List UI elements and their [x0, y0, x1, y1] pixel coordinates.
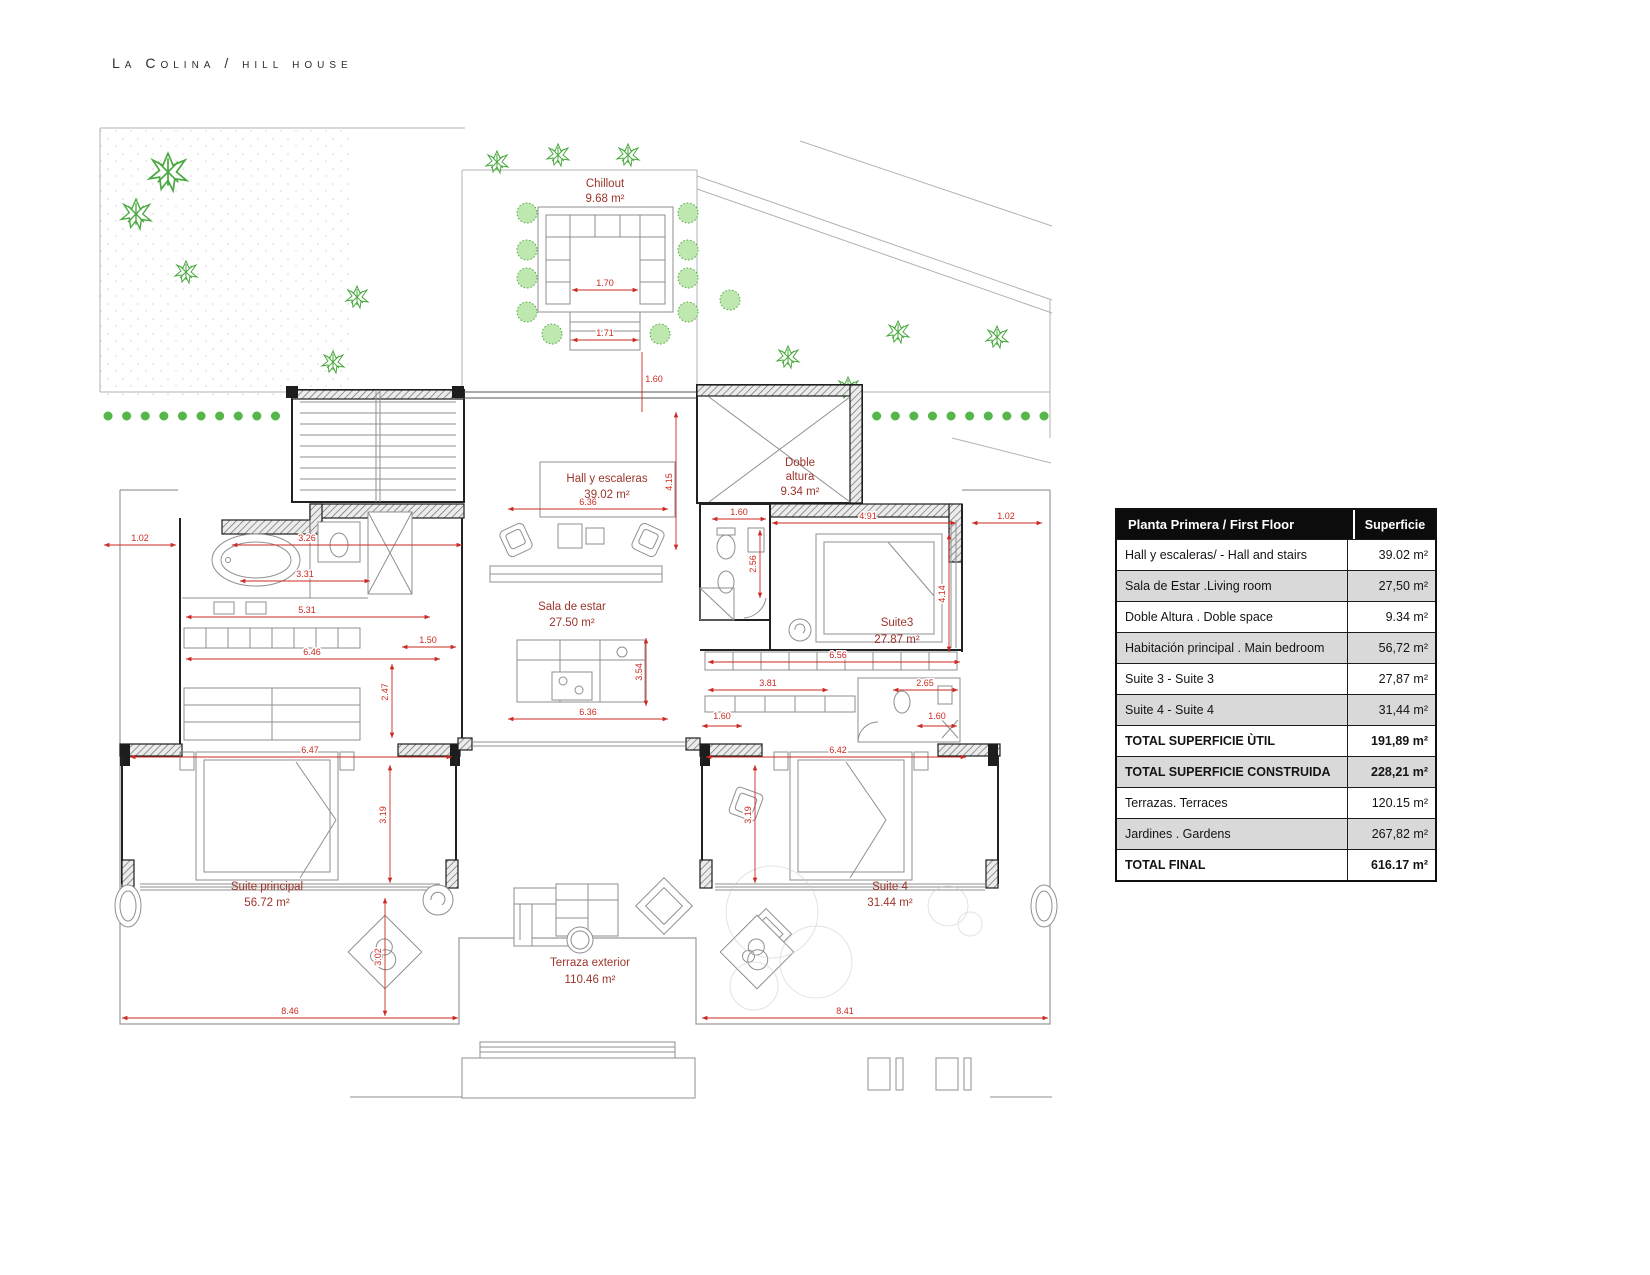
room-area: 27.87 m²: [874, 634, 920, 646]
table-row: Sala de Estar .Living room 27,50 m²: [1117, 570, 1435, 601]
dimension-label: 1.60: [713, 711, 731, 721]
row-label: Jardines . Gardens: [1117, 819, 1347, 849]
room-area: 39.02 m²: [584, 489, 630, 501]
dimension-label: 3.31: [296, 569, 314, 579]
row-label: Suite 4 - Suite 4: [1117, 695, 1347, 725]
table-row: Doble Altura . Doble space 9.34 m²: [1117, 601, 1435, 632]
row-value: 120.15 m²: [1347, 788, 1435, 818]
doble-altura-block: [697, 385, 862, 503]
dimension-label: 1.60: [928, 711, 946, 721]
suite3-bath: [700, 504, 770, 620]
dimension-label: 1.50: [419, 635, 437, 645]
row-value: 56,72 m²: [1347, 633, 1435, 663]
row-label: TOTAL SUPERFICIE ÙTIL: [1117, 726, 1347, 756]
row-value: 191,89 m²: [1347, 726, 1435, 756]
room-area: 110.46 m²: [565, 974, 616, 986]
sala-furniture: [490, 522, 666, 582]
lower-floor-outline: [350, 1042, 1052, 1098]
sink: [246, 602, 266, 614]
dimension-label: 2.65: [916, 678, 934, 688]
dimension-label: 1.02: [997, 511, 1015, 521]
dimension-label: 6.42: [829, 745, 847, 755]
table-row: Jardines . Gardens 267,82 m²: [1117, 818, 1435, 849]
dimension-label: 3.19: [378, 806, 388, 824]
bathtub: [212, 534, 300, 586]
planter: [1031, 885, 1057, 927]
room-label: altura: [786, 471, 815, 483]
table-header: Planta Primera / First Floor Superficie: [1117, 510, 1435, 539]
room-label: Hall y escaleras: [566, 473, 647, 485]
suite4-bed: [728, 752, 928, 880]
area-table: Planta Primera / First Floor Superficie …: [1115, 508, 1437, 882]
header-superficie: Superficie: [1353, 510, 1435, 539]
table-row-total-construida: TOTAL SUPERFICIE CONSTRUIDA 228,21 m²: [1117, 756, 1435, 787]
dimension-label: 3.26: [298, 533, 316, 543]
dimension-label: 1.71: [596, 328, 614, 338]
room-area: 31.44 m²: [867, 897, 913, 909]
table-row: Habitación principal . Main bedroom 56,7…: [1117, 632, 1435, 663]
table-row-total-final: TOTAL FINAL 616.17 m²: [1117, 849, 1435, 880]
row-label: Habitación principal . Main bedroom: [1117, 633, 1347, 663]
stairs: [300, 390, 456, 502]
kitchen-island: [517, 640, 645, 702]
table-row-total-util: TOTAL SUPERFICIE ÙTIL 191,89 m²: [1117, 725, 1435, 756]
wc: [318, 522, 360, 562]
row-label: TOTAL SUPERFICIE CONSTRUIDA: [1117, 757, 1347, 787]
suite3-bed: [789, 534, 942, 642]
dimension-label: 3.54: [634, 663, 644, 681]
room-area: 9.34 m²: [781, 486, 820, 498]
room-label: Chillout: [586, 178, 625, 190]
row-value: 39.02 m²: [1347, 540, 1435, 570]
furniture: [115, 462, 1057, 989]
row-value: 27,50 m²: [1347, 571, 1435, 601]
room-area: 9.68 m²: [586, 193, 625, 205]
row-label: Doble Altura . Doble space: [1117, 602, 1347, 632]
dimension-label: 6.46: [303, 647, 321, 657]
room-label: Suite 4: [872, 881, 908, 893]
suite-principal-bed: [180, 752, 354, 880]
sink: [214, 602, 234, 614]
table-row: Hall y escaleras/ - Hall and stairs 39.0…: [1117, 539, 1435, 570]
room-area: 27.50 m²: [549, 617, 595, 629]
row-value: 31,44 m²: [1347, 695, 1435, 725]
dimension-label: 5.31: [298, 605, 316, 615]
dimension-label: 3.02: [373, 948, 383, 966]
row-value: 9.34 m²: [1347, 602, 1435, 632]
row-value: 616.17 m²: [1347, 850, 1435, 880]
dimension-label: 4.14: [937, 585, 947, 603]
planter: [115, 885, 141, 927]
dimension-label: 8.41: [836, 1006, 854, 1016]
row-label: Hall y escaleras/ - Hall and stairs: [1117, 540, 1347, 570]
suite3-bath-fixtures: [700, 528, 766, 620]
dimension-label: 6.36: [579, 707, 597, 717]
dimension-label: 4.15: [664, 473, 674, 491]
table-row: Suite 3 - Suite 3 27,87 m²: [1117, 663, 1435, 694]
table-row: Terrazas. Terraces 120.15 m²: [1117, 787, 1435, 818]
dimension-label: 3.81: [759, 678, 777, 688]
dimension-label: 1.02: [131, 533, 149, 543]
dimension-label: 6.56: [829, 650, 847, 660]
dimension-label: 8.46: [281, 1006, 299, 1016]
table-row: Suite 4 - Suite 4 31,44 m²: [1117, 694, 1435, 725]
row-value: 27,87 m²: [1347, 664, 1435, 694]
dimension-label: 1.70: [596, 278, 614, 288]
row-label: TOTAL FINAL: [1117, 850, 1347, 880]
row-label: Terrazas. Terraces: [1117, 788, 1347, 818]
room-label: Suite principal: [231, 881, 303, 893]
dimension-label: 4.91: [859, 511, 877, 521]
dimension-label: 2.47: [380, 683, 390, 701]
dimension-label: 2.56: [748, 555, 758, 573]
dimension-label: 1.60: [645, 374, 663, 384]
page-canvas: La Colina / hill house: [0, 0, 1650, 1275]
dimension-label: 6.47: [301, 745, 319, 755]
room-label: Terraza exterior: [550, 957, 630, 969]
row-label: Suite 3 - Suite 3: [1117, 664, 1347, 694]
room-label: Sala de estar: [538, 601, 606, 613]
dimension-label: 1.60: [730, 507, 748, 517]
room-label: Doble: [785, 457, 815, 469]
dimension-label: 3.19: [743, 806, 753, 824]
row-value: 228,21 m²: [1347, 757, 1435, 787]
room-area: 56.72 m²: [244, 897, 290, 909]
header-floor: Planta Primera / First Floor: [1117, 510, 1353, 539]
row-label: Sala de Estar .Living room: [1117, 571, 1347, 601]
small-bath: [858, 678, 960, 742]
row-value: 267,82 m²: [1347, 819, 1435, 849]
room-label: Suite3: [881, 617, 914, 629]
